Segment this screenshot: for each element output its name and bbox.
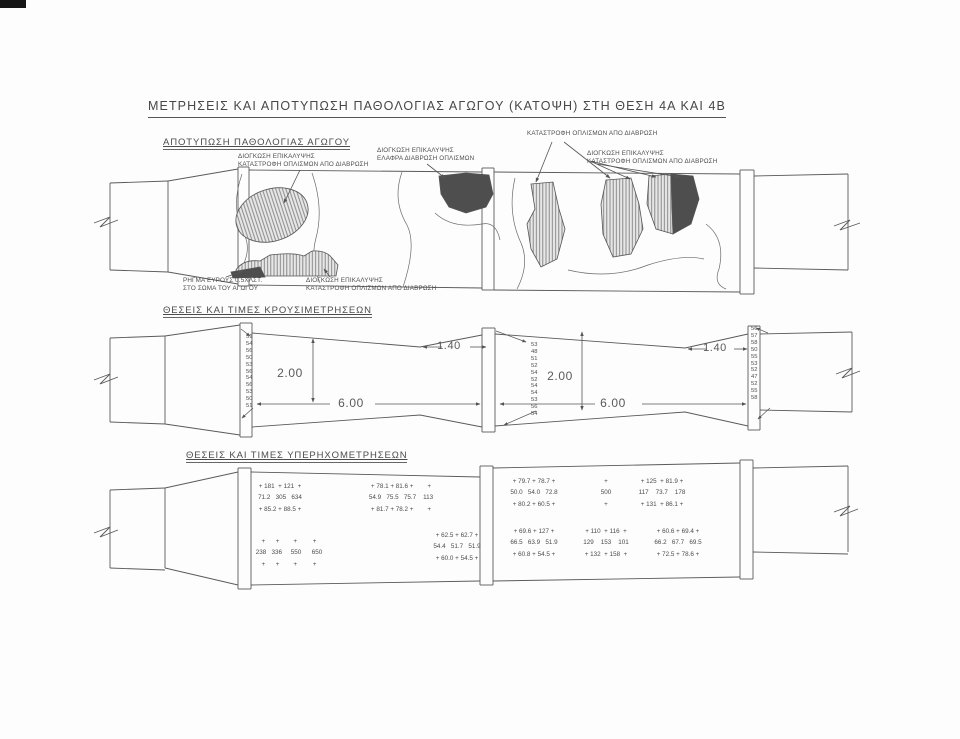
damage-hatched-region (229, 179, 315, 251)
annotation-swelling-destruction-right: ΔΙΟΓΚΩΣΗ ΕΠΙΚΑΛΥΨΗΣ ΚΑΤΑΣΤΡΟΦΗ ΟΠΛΙΣΜΩΝ … (587, 150, 717, 165)
dim-length-2: 6.00 (592, 396, 634, 410)
pipe-outline (94, 460, 858, 589)
pipe-break-icon (834, 506, 858, 516)
drawing-sheet: ΜΕΤΡΗΣΕΙΣ ΚΑΙ ΑΠΟΤΥΠΩΣΗ ΠΑΘΟΛΟΓΙΑΣ ΑΓΩΓΟ… (0, 0, 960, 739)
rebound-drawing (90, 318, 885, 445)
rebound-right-column: 56 57 58 50 55 53 52 47 52 55 58 (751, 326, 757, 402)
ultrasonic-group-2: + 78.1 + 81.6 + + 54.9 75.5 75.7 113 + 8… (330, 481, 472, 515)
pipe-break-icon (94, 217, 118, 227)
dim-length-1: 6.00 (330, 396, 372, 410)
annotation-rebar-destruction-top: ΚΑΤΑΣΤΡΟΦΗ ΟΠΛΙΣΜΩΝ ΑΠΟ ΔΙΑΒΡΩΣΗ (527, 130, 657, 138)
ultrasonic-drawing (90, 455, 885, 595)
annotation-swelling-destruction-bottom: ΔΙΟΓΚΩΣΗ ΕΠΙΚΑΛΥΨΗΣ ΚΑΤΑΣΤΡΟΦΗ ΟΠΛΙΣΜΩΝ … (306, 277, 436, 292)
ultrasonic-group-6: + 500 + (592, 476, 620, 510)
rebound-middle-column: 53 48 51 52 54 52 54 54 53 56 54 (531, 342, 537, 418)
dim-width-2: 2.00 (542, 369, 578, 383)
ultrasonic-group-5: + 79.7 + 78.7 + 50.0 54.0 72.8 + 80.2 + … (500, 476, 568, 510)
damage-hatched-region (601, 178, 643, 257)
annotation-swelling-light-corrosion: ΔΙΟΓΚΩΣΗ ΕΠΙΚΑΛΥΨΗΣ ΕΛΑΦΡΑ ΔΙΑΒΡΩΣΗ ΟΠΛΙ… (377, 147, 474, 162)
pathology-drawing (90, 128, 880, 300)
ultrasonic-group-1: + 181 + 121 + 71.2 305 634 + 85.2 + 88.5… (238, 481, 322, 515)
pipe-outline (94, 323, 860, 437)
damage-dark-region (671, 174, 699, 234)
ultrasonic-group-10: + 60.6 + 69.4 + 66.2 67.7 69.5 + 72.5 + … (642, 526, 714, 560)
ultrasonic-group-4: + 62.5 + 62.7 + 54.4 51.7 51.9 + 60.0 + … (424, 530, 490, 564)
page-title: ΜΕΤΡΗΣΕΙΣ ΚΑΙ ΑΠΟΤΥΠΩΣΗ ΠΑΘΟΛΟΓΙΑΣ ΑΓΩΓΟ… (148, 99, 726, 118)
section-heading-rebound: ΘΕΣΕΙΣ ΚΑΙ ΤΙΜΕΣ ΚΡΟΥΣΙΜΕΤΡΗΣΕΩΝ (163, 305, 372, 318)
scan-artifact (0, 0, 26, 8)
pipe-break-icon (834, 220, 860, 230)
column-leader-lines (241, 328, 770, 425)
annotation-crack: ΡΗΓΜΑ ΕΥΡΟΥΣ 0.5ΧΛΣΤ. ΣΤΟ ΣΩΜΑ ΤΟΥ ΑΓΩΓΟ… (183, 277, 262, 292)
ultrasonic-group-8: + 69.6 + 127 + 66.5 63.9 51.9 + 60.8 + 5… (500, 526, 568, 560)
dim-width-1: 2.00 (272, 366, 308, 380)
pipe-break-icon (94, 527, 118, 537)
annotation-swelling-destruction-left: ΔΙΟΓΚΩΣΗ ΕΠΙΚΑΛΥΨΗΣ ΚΑΤΑΣΤΡΟΦΗ ΟΠΛΙΣΜΩΝ … (238, 153, 368, 168)
rebound-left-column: 51 54 56 50 53 56 54 56 53 50 51 (246, 334, 252, 410)
ultrasonic-group-3: + + + + 238 336 550 650 + + + + (224, 536, 354, 570)
pipe-break-icon (94, 374, 118, 384)
dim-taper-1: 1.40 (430, 340, 468, 352)
damage-hatched-region (647, 174, 673, 234)
ultrasonic-group-9: + 110 + 116 + 129 153 101 + 132 + 158 + (570, 526, 642, 560)
damage-dark-region (439, 173, 493, 213)
pipe-break-icon (836, 368, 860, 378)
damage-hatched-region (527, 182, 565, 267)
dim-taper-2: 1.40 (696, 342, 734, 354)
ultrasonic-group-7: + 125 + 81.9 + 117 73.7 178 + 131 + 86.1… (622, 476, 702, 510)
